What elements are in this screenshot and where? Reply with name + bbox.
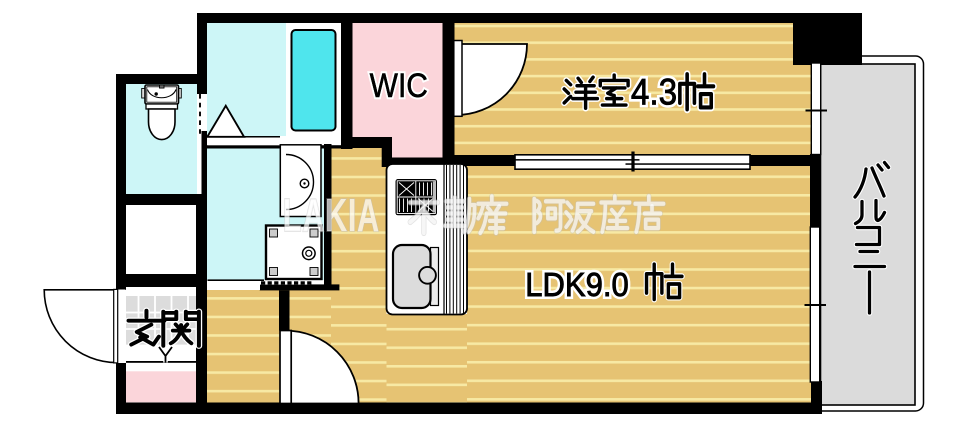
- svg-text:LDK9.0: LDK9.0: [525, 266, 628, 303]
- svg-text:WIC: WIC: [370, 66, 428, 104]
- svg-text:LAKIA: LAKIA: [283, 191, 380, 242]
- svg-text:4.3: 4.3: [631, 72, 677, 113]
